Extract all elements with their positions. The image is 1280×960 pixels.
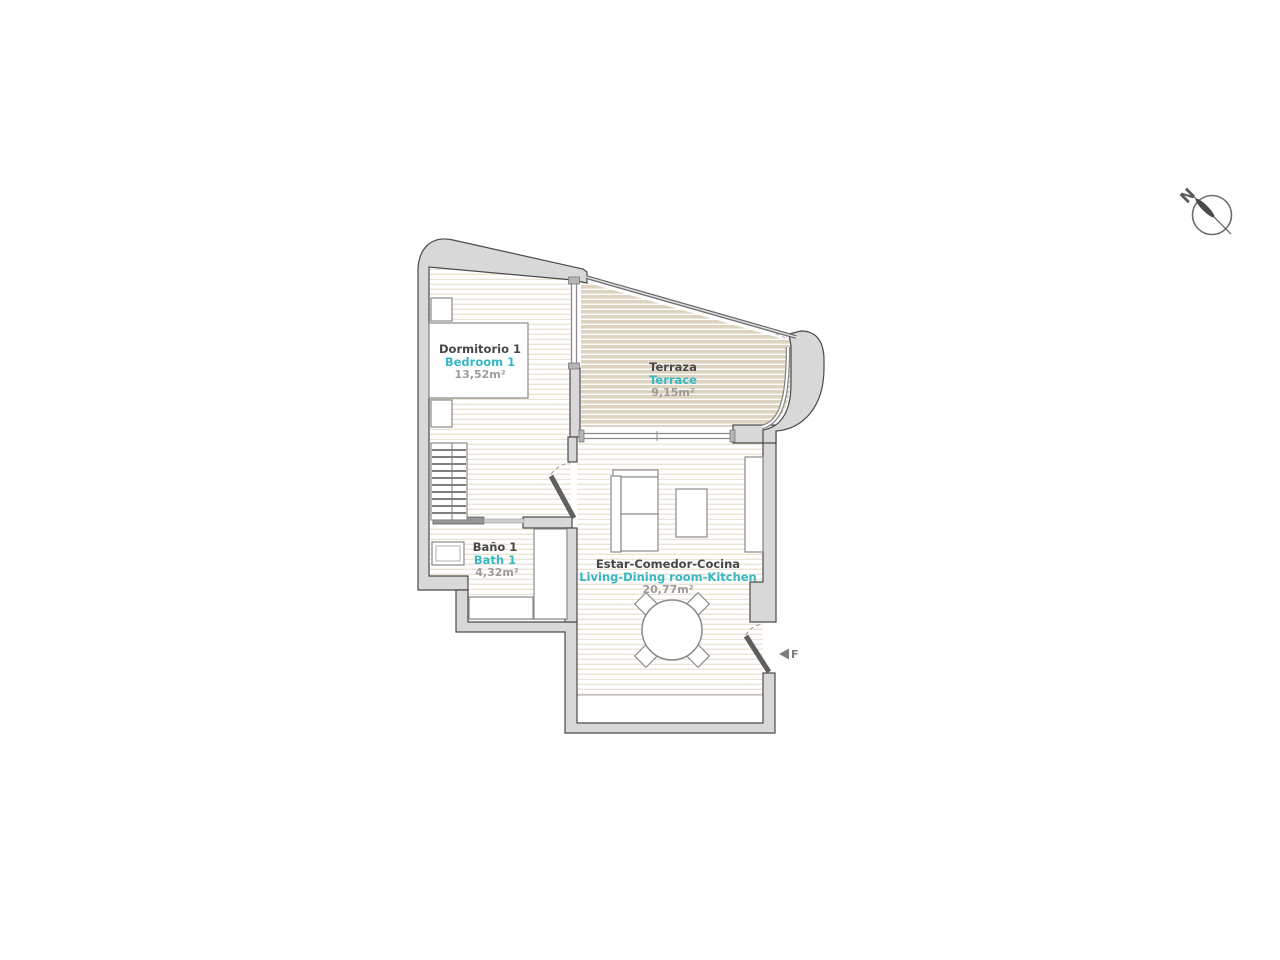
svg-text:9,15m²: 9,15m² <box>651 386 695 399</box>
shower <box>534 529 567 619</box>
entry-marker: F <box>779 648 799 661</box>
floor-plan-page: Dormitorio 1 Bedroom 1 13,52m² Terraza T… <box>0 0 1280 960</box>
wall-divider-hall-living <box>568 437 577 462</box>
terrace-floor <box>581 281 791 427</box>
compass: N <box>1176 184 1231 234</box>
nightstand <box>431 298 452 321</box>
room-label-terrace: Terraza Terrace 9,15m² <box>649 360 697 399</box>
svg-text:13,52m²: 13,52m² <box>454 368 505 381</box>
svg-text:Bedroom 1: Bedroom 1 <box>445 355 515 369</box>
svg-text:Estar-Comedor-Cocina: Estar-Comedor-Cocina <box>596 557 740 571</box>
living-bottom-strip <box>577 695 763 723</box>
svg-text:Dormitorio 1: Dormitorio 1 <box>439 342 521 356</box>
nightstand <box>431 400 452 427</box>
entry-arrow-icon <box>779 649 789 660</box>
svg-text:20,77m²: 20,77m² <box>642 583 693 596</box>
sink <box>432 542 464 565</box>
wall-bath-top <box>523 517 572 528</box>
bathtub <box>469 597 533 619</box>
dining-table <box>642 600 702 660</box>
svg-text:F: F <box>791 648 799 661</box>
sofa <box>611 470 658 552</box>
floor-plan-canvas: Dormitorio 1 Bedroom 1 13,52m² Terraza T… <box>0 0 1280 960</box>
svg-text:Living-Dining room-Kitchen: Living-Dining room-Kitchen <box>579 570 757 584</box>
coffee-table <box>676 489 707 537</box>
svg-text:Baño 1: Baño 1 <box>473 540 518 554</box>
terrace-sliding-door <box>579 430 735 442</box>
svg-text:4,32m²: 4,32m² <box>475 566 519 579</box>
wardrobe <box>431 443 467 520</box>
dining-set <box>635 593 710 668</box>
room-label-bath: Baño 1 Bath 1 4,32m² <box>473 540 519 579</box>
wall-divider-bedroom-terrace <box>570 368 580 437</box>
kitchen-counter <box>745 457 763 552</box>
svg-text:Terraza: Terraza <box>649 360 697 374</box>
north-needle-icon <box>1194 197 1217 220</box>
svg-text:Terrace: Terrace <box>649 373 697 387</box>
svg-text:Bath 1: Bath 1 <box>474 553 516 567</box>
